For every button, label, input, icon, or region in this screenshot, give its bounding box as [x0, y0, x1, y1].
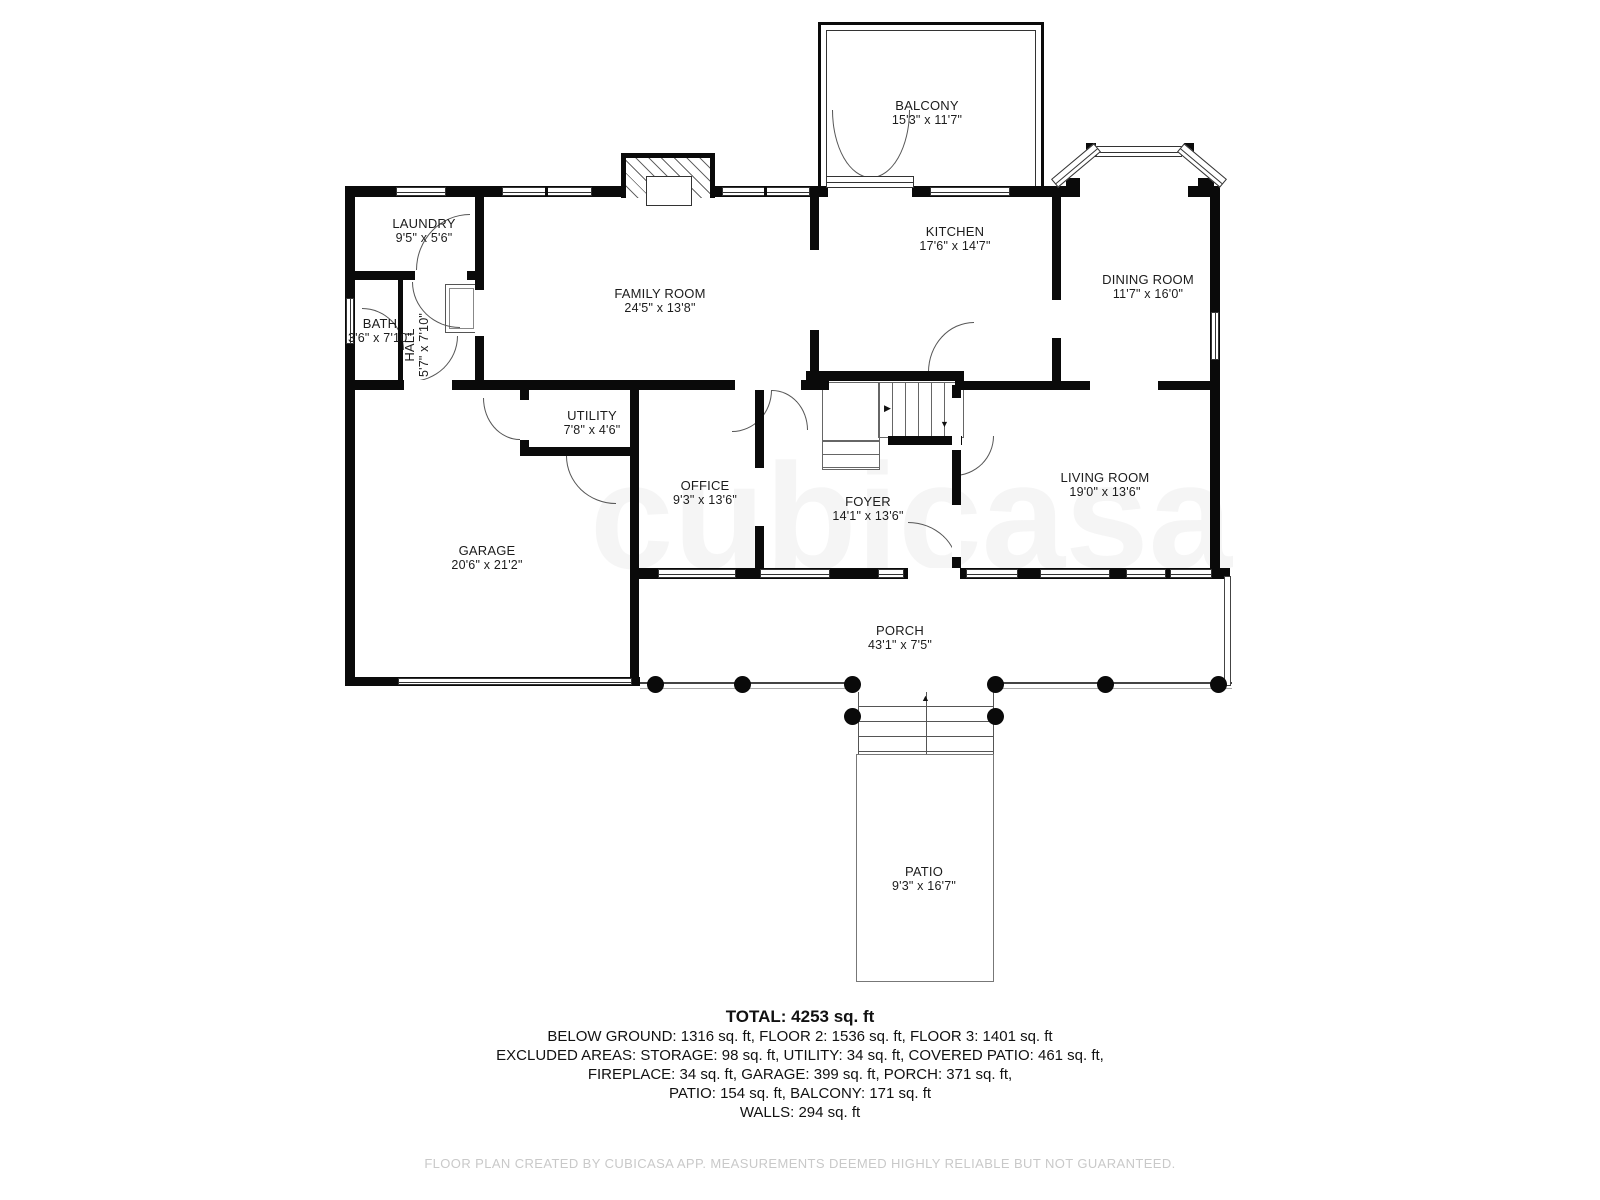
total-area: TOTAL: 4253 sq. ft: [0, 1007, 1600, 1027]
steps-up-arrow-icon: ▲: [921, 694, 930, 703]
room-label-hall: HALL5'7" x 7'10": [402, 270, 432, 420]
wall-opening: [810, 250, 819, 330]
stair-direction-arrow-icon: ▼: [940, 420, 949, 429]
room-label-foyer: FOYER14'1" x 13'6": [793, 494, 943, 524]
room-label-bath: BATH3'6" x 7'10": [305, 316, 455, 346]
window: [760, 569, 830, 578]
room-label-dining-room: DINING ROOM11'7" x 16'0": [1073, 272, 1223, 302]
front-door-opening: [908, 568, 960, 579]
step-column: [844, 708, 861, 725]
window: [396, 187, 446, 196]
stair-direction-arrow-icon: ▶: [884, 404, 891, 413]
room-label-utility: UTILITY7'8" x 4'6": [517, 408, 667, 438]
porch-column: [734, 676, 751, 693]
area-summary: TOTAL: 4253 sq. ft BELOW GROUND: 1316 sq…: [0, 1007, 1600, 1122]
room-label-porch: PORCH43'1" x 7'5": [825, 623, 975, 653]
room-label-family-room: FAMILY ROOM24'5" x 13'8": [585, 286, 735, 316]
garage-door: [398, 678, 632, 685]
porch-column: [987, 676, 1004, 693]
balcony-door-sill: [826, 176, 914, 188]
porch-edge: [1224, 576, 1231, 686]
wall: [1052, 195, 1061, 385]
summary-line: FIREPLACE: 34 sq. ft, GARAGE: 399 sq. ft…: [0, 1065, 1600, 1084]
window: [878, 569, 904, 578]
door-opening: [952, 398, 961, 450]
window: [1040, 569, 1110, 578]
window: [1211, 312, 1219, 360]
door-arc: [772, 390, 808, 430]
door-arc: [566, 456, 616, 504]
step-column: [987, 708, 1004, 725]
wall: [888, 436, 962, 445]
door-arc: [928, 322, 974, 372]
summary-line: EXCLUDED AREAS: STORAGE: 98 sq. ft, UTIL…: [0, 1046, 1600, 1065]
wall: [520, 447, 638, 456]
room-label-office: OFFICE9'3" x 13'6": [630, 478, 780, 508]
door-opening: [475, 290, 484, 336]
window-mullion: [764, 187, 767, 196]
window: [930, 187, 1010, 196]
window: [966, 569, 1018, 578]
window: [1170, 569, 1212, 578]
porch-column: [844, 676, 861, 693]
wall: [1066, 178, 1080, 197]
door-arc: [732, 390, 772, 432]
window: [1126, 569, 1166, 578]
summary-line: PATIO: 154 sq. ft, BALCONY: 171 sq. ft: [0, 1084, 1600, 1103]
door-arc: [483, 398, 520, 440]
wall: [955, 381, 1090, 390]
room-label-garage: GARAGE20'6" x 21'2": [412, 543, 562, 573]
door-opening: [735, 380, 801, 390]
room-label-laundry: LAUNDRY9'5" x 5'6": [349, 216, 499, 246]
wall-opening: [1052, 300, 1061, 338]
bay-window: [1096, 146, 1182, 157]
wall: [1158, 381, 1220, 390]
window: [658, 569, 736, 578]
door-opening: [952, 505, 961, 557]
wall: [806, 371, 964, 381]
porch-column: [1210, 676, 1227, 693]
room-label-living-room: LIVING ROOM19'0" x 13'6": [1030, 470, 1180, 500]
fireplace-firebox: [646, 176, 692, 206]
porch-column: [647, 676, 664, 693]
summary-line: BELOW GROUND: 1316 sq. ft, FLOOR 2: 1536…: [0, 1027, 1600, 1046]
creator-disclaimer: FLOOR PLAN CREATED BY CUBICASA APP. MEAS…: [0, 1156, 1600, 1171]
room-label-balcony: BALCONY15'3" x 11'7": [852, 98, 1002, 128]
room-label-kitchen: KITCHEN17'6" x 14'7": [880, 224, 1030, 254]
room-label-patio: PATIO9'3" x 16'7": [849, 864, 999, 894]
window-mullion: [545, 187, 548, 196]
wall: [345, 186, 355, 686]
summary-line: WALLS: 294 sq. ft: [0, 1103, 1600, 1122]
porch-column: [1097, 676, 1114, 693]
stairs-down: [822, 440, 880, 470]
